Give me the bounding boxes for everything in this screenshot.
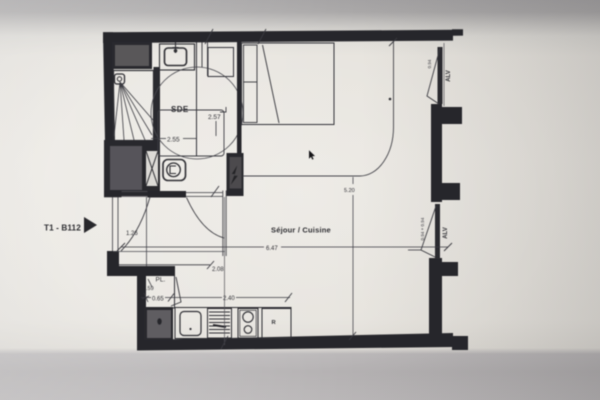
svg-text:PL.: PL. (156, 277, 166, 284)
svg-text:.59: .59 (146, 286, 154, 292)
svg-text:1.26: 1.26 (126, 231, 138, 237)
svg-text:2.40: 2.40 (223, 296, 235, 302)
svg-text:0.65: 0.65 (152, 297, 164, 303)
svg-text:2.55: 2.55 (167, 137, 180, 144)
svg-text:0.94 + 0.94: 0.94 + 0.94 (420, 217, 425, 240)
svg-text:6.47: 6.47 (266, 246, 278, 252)
svg-text:ALV: ALV (443, 227, 449, 239)
svg-text:Séjour / Cuisine: Séjour / Cuisine (271, 226, 331, 235)
svg-text:R: R (272, 320, 277, 326)
svg-text:SDE: SDE (171, 105, 189, 114)
svg-text:5.20: 5.20 (344, 188, 355, 194)
svg-text:0.94: 0.94 (427, 59, 432, 68)
svg-text:2.57: 2.57 (208, 114, 221, 121)
svg-text:ALV: ALV (446, 70, 452, 82)
svg-text:T1 - B112: T1 - B112 (44, 224, 81, 233)
svg-text:2.08: 2.08 (212, 267, 224, 273)
